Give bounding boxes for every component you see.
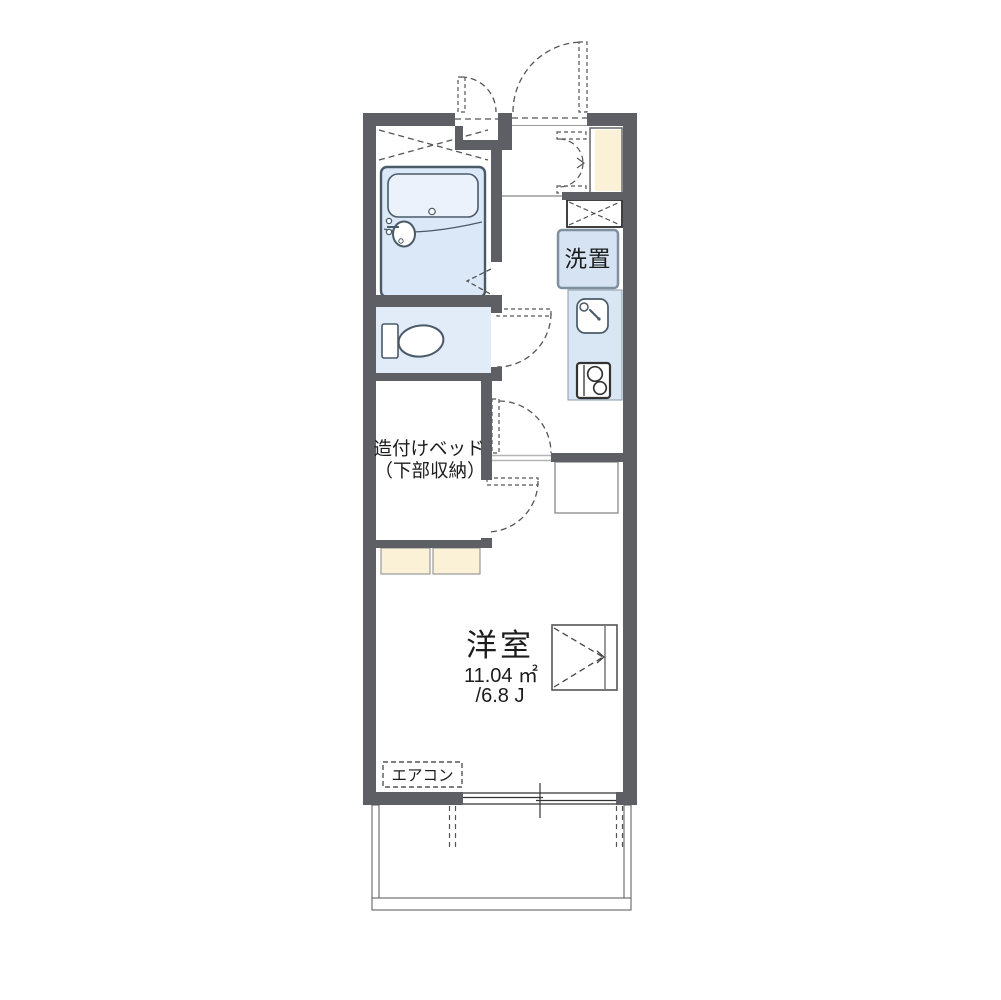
- shoe-cabinet-body: [595, 130, 621, 191]
- built-in-bed-label-line1: 造付けベッド: [373, 438, 484, 459]
- washer-space-label: 洗置: [564, 247, 611, 272]
- stove-burner-icon: [594, 382, 607, 395]
- upper-storage-box: [567, 200, 622, 227]
- bath-faucet-knob: [386, 229, 391, 234]
- balcony-rail-right: [624, 805, 631, 898]
- storage-box: [433, 548, 480, 574]
- built-in-bed-label-line2: （下部収納）: [374, 460, 485, 481]
- refrigerator-space: [555, 462, 618, 513]
- bath-faucet-knob: [386, 218, 391, 223]
- floor-plan-drawing: 洗置: [0, 0, 1001, 1000]
- bathtub-drain-icon: [429, 208, 435, 214]
- toilet-tank-icon: [382, 324, 398, 358]
- kitchen-faucet-base-icon: [580, 303, 588, 311]
- kitchen-faucet-tip: [597, 317, 600, 320]
- bath-sink-icon: [393, 222, 415, 247]
- bed-storage-boxes: [381, 548, 480, 574]
- main-room-closet: [552, 625, 617, 690]
- aircon-label: エアコン: [391, 768, 453, 785]
- balcony-rail-left: [372, 805, 379, 898]
- balcony-rail-bottom: [372, 898, 631, 910]
- stove-burner-icon: [588, 367, 603, 382]
- aircon-box: エアコン: [383, 762, 462, 787]
- washer-space: 洗置: [558, 230, 618, 288]
- main-room-area-m2-label: 11.04 ㎡: [464, 663, 538, 687]
- main-room-area-jo-label: /6.8 J: [476, 685, 525, 707]
- storage-box: [381, 548, 430, 574]
- main-room-name-label: 洋室: [466, 628, 534, 663]
- floor-plan-page: 洗置: [0, 0, 1001, 1000]
- unit-bath: [381, 167, 494, 297]
